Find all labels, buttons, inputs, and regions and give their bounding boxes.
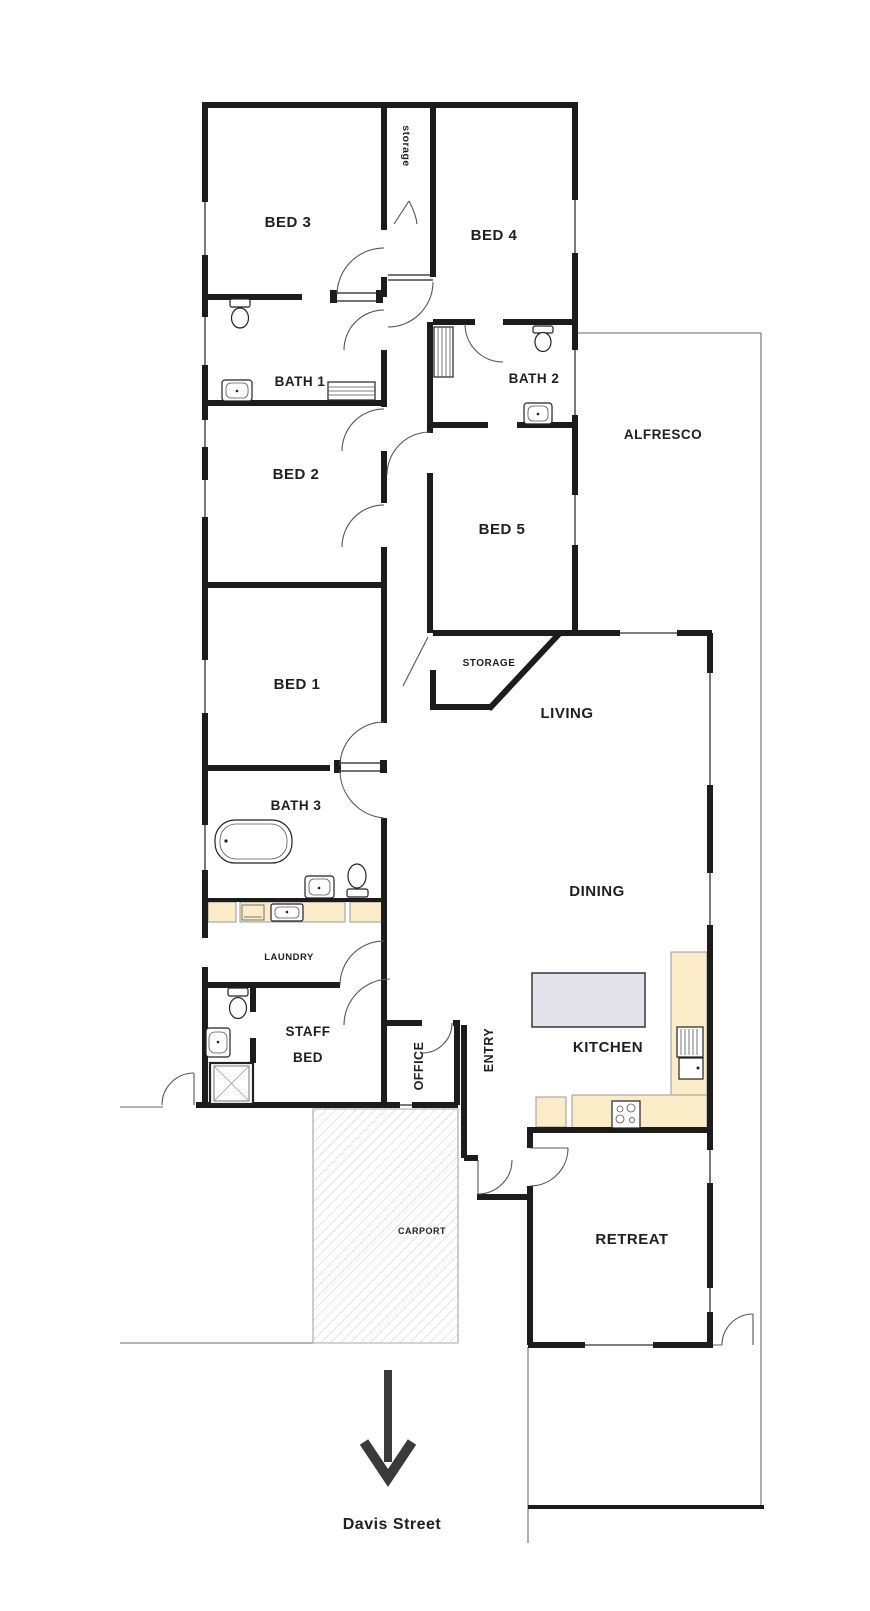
property-boundary-lines <box>120 333 764 1543</box>
label-entry: ENTRY <box>482 1028 496 1073</box>
label-bath2: BATH 2 <box>509 371 560 386</box>
label-storage-top: storage <box>400 125 412 166</box>
sink-fixture-bath3 <box>305 876 334 898</box>
linen-cupboard-fixture <box>434 327 453 377</box>
label-street: Davis Street <box>343 1516 442 1533</box>
toilet-fixture-bath3 <box>347 864 368 897</box>
stove-fixture <box>612 1101 640 1128</box>
street-direction-arrow <box>364 1370 412 1478</box>
label-bed3: BED 3 <box>265 214 312 231</box>
label-office: OFFICE <box>412 1042 426 1091</box>
label-staff-bed-1: STAFF <box>286 1024 331 1039</box>
label-retreat: RETREAT <box>595 1231 668 1248</box>
label-staff-bed-2: BED <box>293 1050 323 1065</box>
laundry-trough-fixture <box>271 904 303 921</box>
label-bath3: BATH 3 <box>271 798 322 813</box>
floor-plan-page: BED 3BED 4storageBATH 1BATH 2ALFRESCOBED… <box>0 0 870 1611</box>
label-bed2: BED 2 <box>273 466 320 483</box>
label-bath1: BATH 1 <box>275 374 326 389</box>
label-kitchen: KITCHEN <box>573 1039 643 1056</box>
floor-plan-canvas: BED 3BED 4storageBATH 1BATH 2ALFRESCOBED… <box>0 0 870 1611</box>
label-bed1: BED 1 <box>274 676 321 693</box>
label-living: LIVING <box>540 705 593 722</box>
shelf-fixture-bath1 <box>328 382 375 400</box>
sink-fixture-bath1 <box>222 380 252 401</box>
toilet-fixture-bath1 <box>230 299 250 328</box>
label-alfresco: ALFRESCO <box>624 427 702 442</box>
kitchen-sink-fixture <box>677 1027 703 1079</box>
shower-fixture-staff <box>210 1063 253 1104</box>
label-storage-mid: STORAGE <box>463 658 516 669</box>
bathtub-fixture-bath3 <box>215 820 292 863</box>
label-bed5: BED 5 <box>479 521 526 538</box>
sink-fixture-staff <box>206 1028 230 1057</box>
label-bed4: BED 4 <box>471 227 518 244</box>
label-dining: DINING <box>569 883 625 900</box>
label-laundry: LAUNDRY <box>264 952 314 963</box>
toilet-fixture-staff <box>228 988 248 1019</box>
label-carport: CARPORT <box>398 1226 446 1236</box>
kitchen-island <box>532 973 645 1027</box>
sink-fixture-bath2 <box>524 403 552 424</box>
toilet-fixture-bath2 <box>533 326 553 352</box>
